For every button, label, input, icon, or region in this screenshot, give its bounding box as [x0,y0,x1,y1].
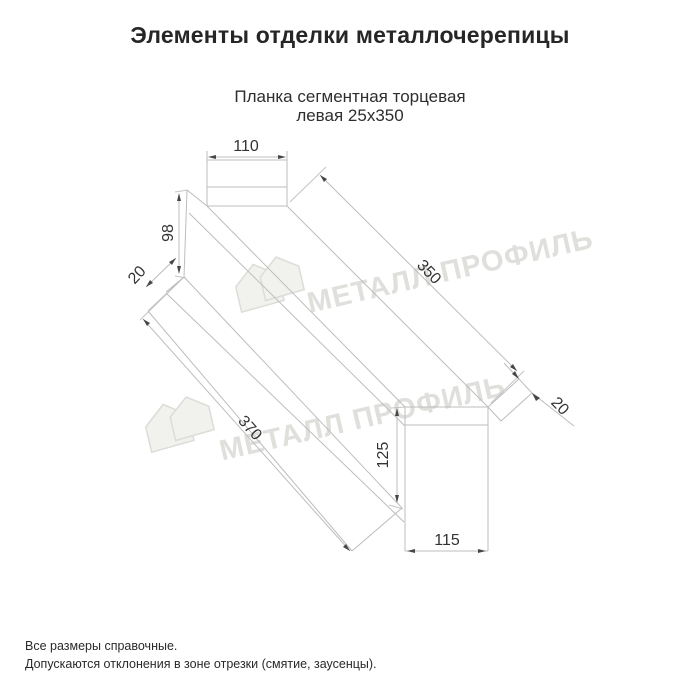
dimension-label: 98 [160,224,177,242]
extension-line [290,167,326,202]
dimension-label: 115 [434,532,460,549]
arrowhead [208,155,216,159]
arrowhead [177,193,181,201]
end-left-edges [148,190,207,311]
arrowhead [532,393,540,401]
dimension-label: 125 [375,442,392,469]
technical-drawing: МЕТАЛЛ ПРОФИЛЬ МЕТАЛЛ ПРОФИЛЬ [0,0,700,700]
dimension-20-left: 20 [125,258,176,288]
footer-note-2: Допускаются отклонения в зоне отрезки (с… [25,655,377,673]
footer-note-1: Все размеры справочные. [25,637,377,655]
footer-notes: Все размеры справочные. Допускаются откл… [25,637,377,673]
watermark-upper: МЕТАЛЛ ПРОФИЛЬ [231,223,596,320]
extension-line [175,190,188,192]
dimension-110: 110 [208,138,286,159]
catalog-page: Элементы отделки металлочерепицы Планка … [0,0,700,700]
dimension-98: 98 [160,190,188,278]
hem-edge [488,407,501,421]
logo-house-shape [167,393,215,441]
drawing-line [184,190,187,277]
arrowhead [177,266,181,274]
dimension-20-right: 20 [504,363,574,426]
strip-ridge-line [207,206,405,407]
strip-fold-line [189,213,405,426]
end-face-left [207,151,287,206]
arrowhead [478,549,486,553]
dimension-label: 20 [125,263,150,288]
drawing-line [187,190,207,206]
metal-profil-logo-icon [141,393,216,453]
arrowhead [407,549,415,553]
arrowhead [278,155,286,159]
end-face-right [405,407,488,551]
dimension-115: 115 [407,532,486,553]
end-cut-edge [352,508,402,551]
dimension-label: 110 [233,138,259,155]
hem-edge [519,379,532,393]
dimension-label: 20 [547,394,572,419]
watermark-lower: МЕТАЛЛ ПРОФИЛЬ [141,370,508,467]
logo-house-shape [257,253,305,301]
metal-profil-logo-icon [231,253,306,313]
